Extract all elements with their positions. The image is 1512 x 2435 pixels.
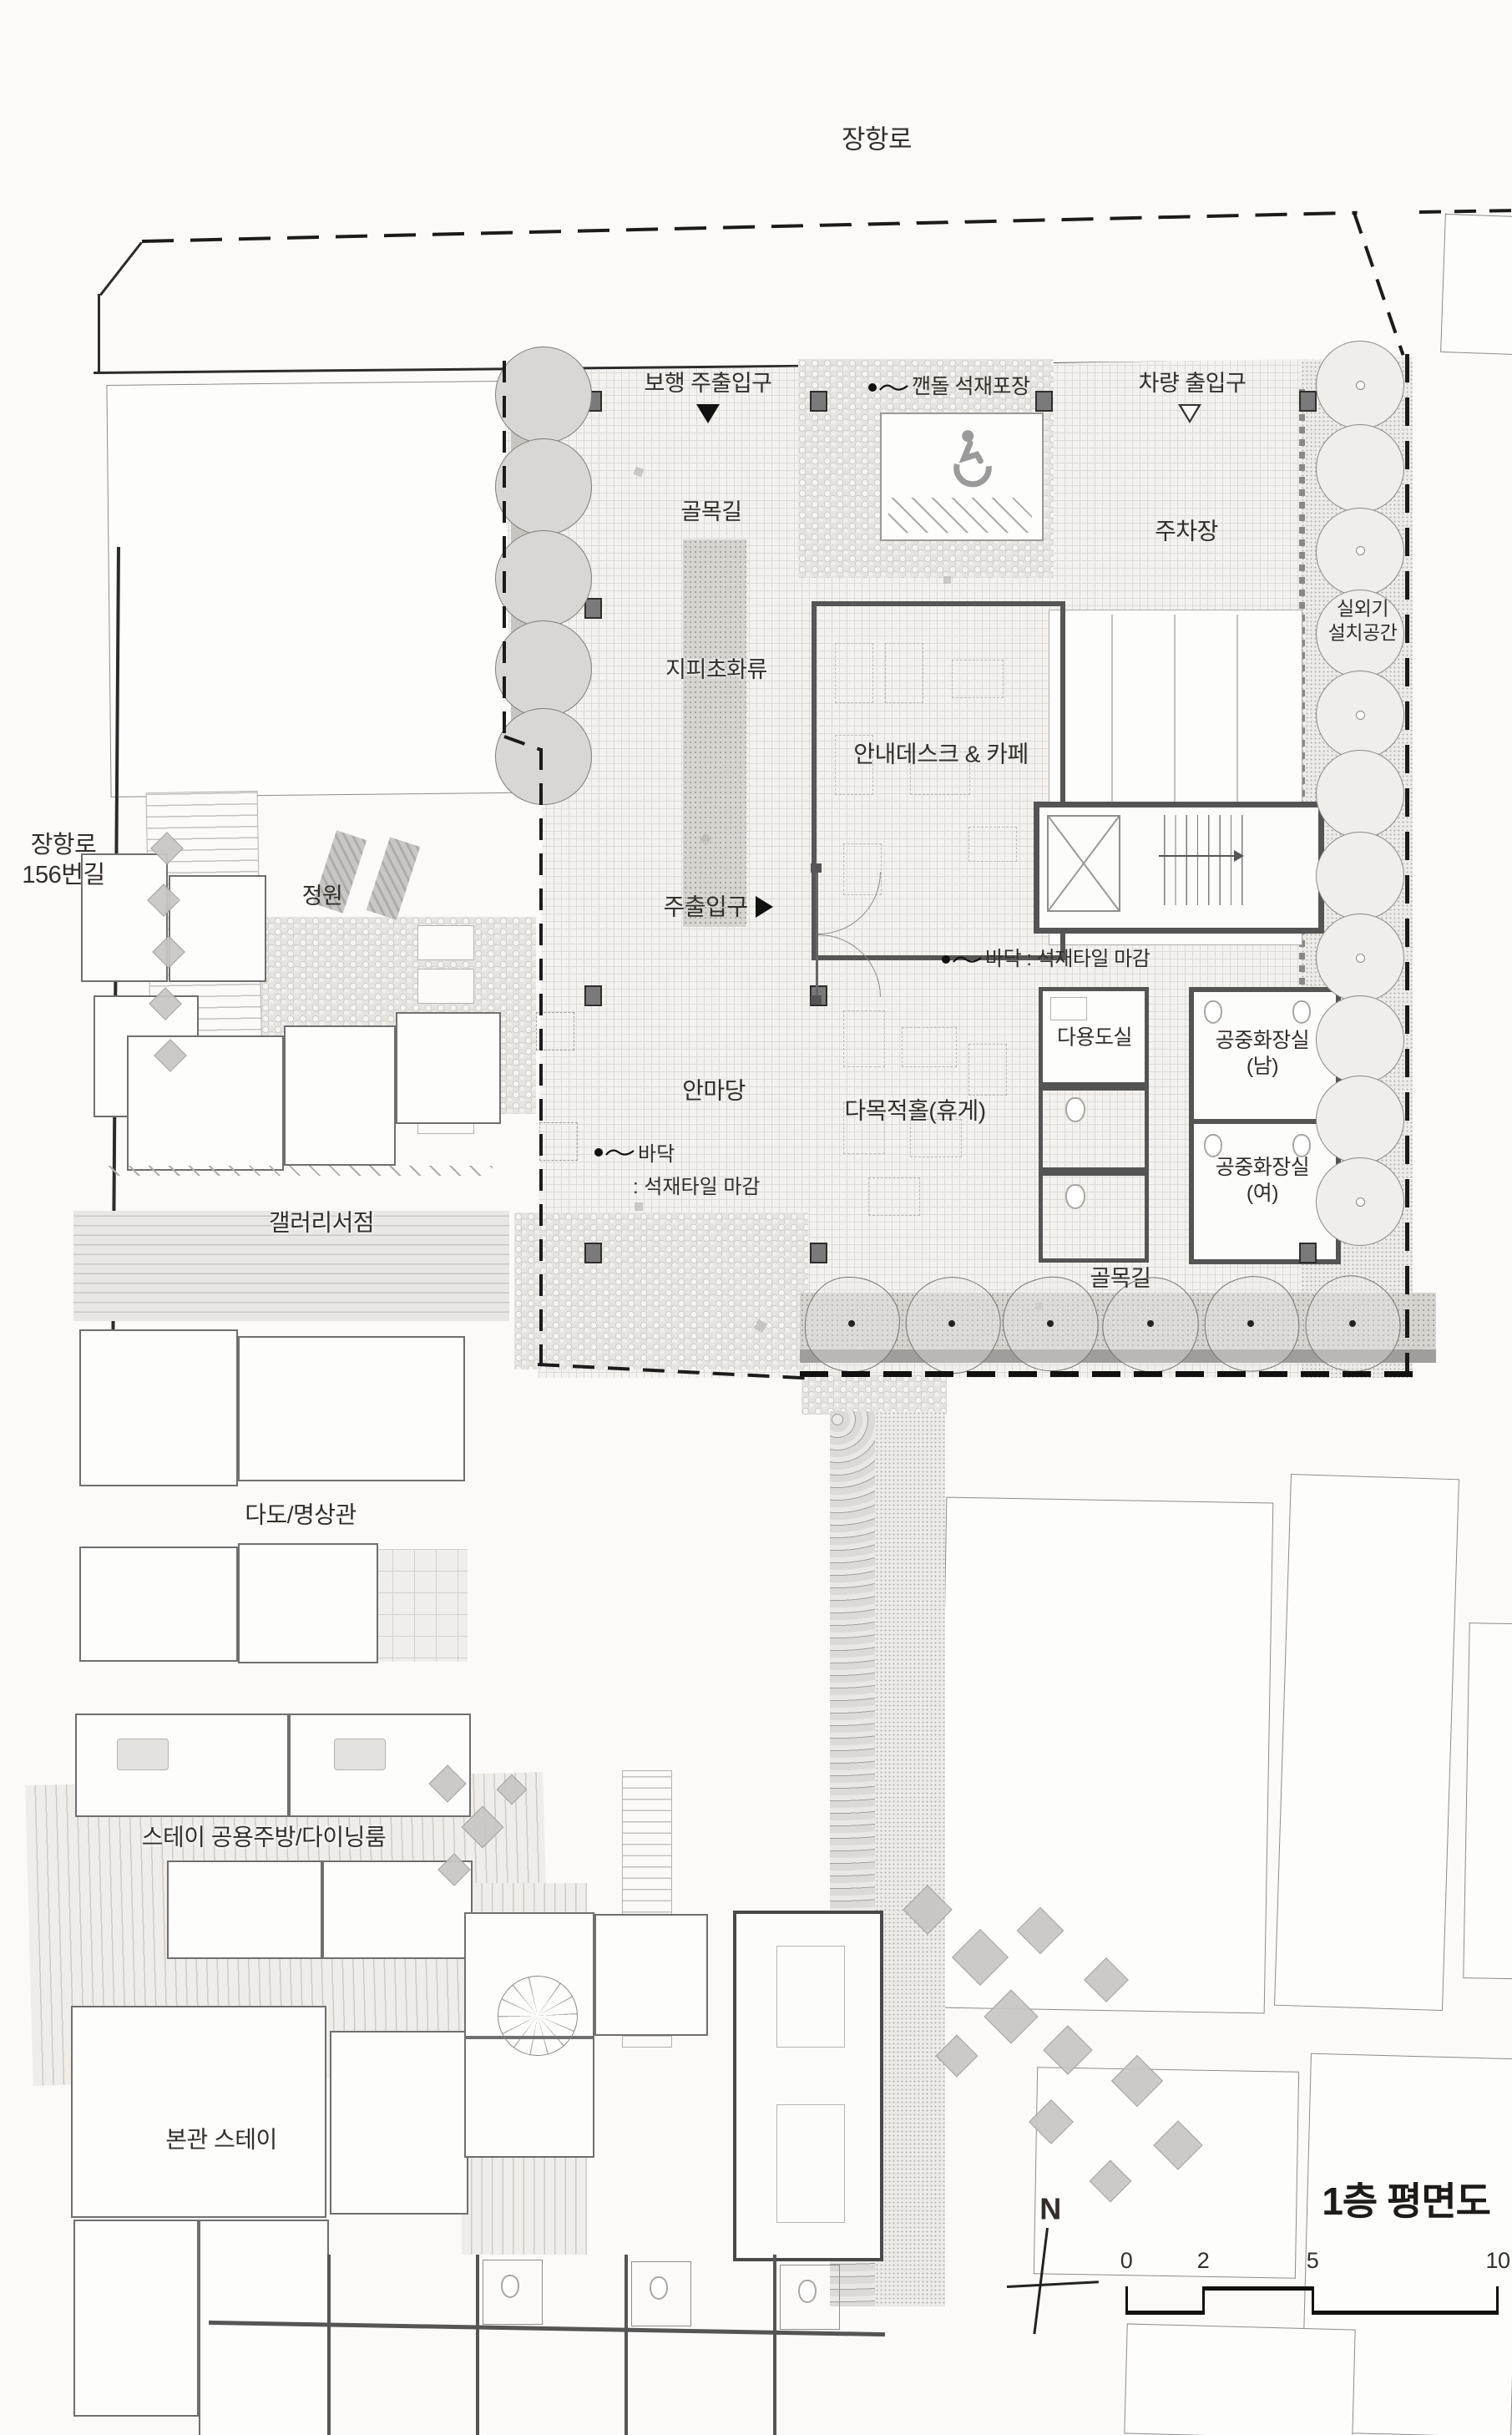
parcel [1463,1622,1512,1980]
tea-meditation-label: 다도/명상관 [245,1501,357,1530]
pedestrian-entrance-marker [696,404,720,423]
groundcover-label: 지피초화류 [665,656,767,685]
furniture [868,1177,920,1216]
tree [1316,750,1404,838]
leader-dot-icon [594,1148,603,1157]
room-outline [169,875,266,982]
toilet [501,2275,519,2298]
toilet [1065,1184,1085,1209]
road-label-left: 장항로 156번길 [22,830,104,891]
north-crossbar [1007,2281,1099,2287]
gravel-path [875,1411,945,2306]
toilet [650,2276,668,2300]
tree [495,530,592,627]
parking-label: 주차장 [1155,517,1218,546]
cobble-path [802,1374,947,1415]
room-outline [284,1025,396,1166]
column [810,1243,827,1263]
leader-dot-icon [942,955,950,964]
floor-plan: 장항로 장항로 156번길 보행 주출입구 깬돌 석재포장 차량 출입구 골목길… [0,0,1512,2435]
speck [635,1202,643,1211]
main-entrance-label: 주출입구 [663,893,747,922]
stone-paving-leader: 깬돌 석재포장 [868,374,1029,400]
road-label-top: 장항로 [842,124,912,157]
scale-tick-10: 10 [1485,2247,1509,2276]
floor-finish-label: 바닥 : 석재타일 마감 [985,947,1150,972]
scale-tick-5: 5 [1307,2247,1319,2276]
site-boundary [1419,209,1512,214]
access-aisle-hatch [888,498,1032,533]
tree-dot [1247,1320,1254,1327]
leader-squiggle-icon [953,953,983,966]
leader-squiggle-icon [879,381,909,394]
wc-women-line1: 공중화장실 [1216,1156,1310,1179]
counter [776,1946,845,2048]
counter [776,2104,845,2223]
tree [1316,424,1404,513]
column [1299,391,1317,412]
hall-label: 다목적홀(휴게) [844,1096,985,1126]
toilet [798,2280,817,2303]
column [1035,391,1053,412]
tree [495,438,592,535]
courtyard-label: 안마당 [682,1076,746,1106]
road-edge [99,241,142,296]
wc-room [1039,1082,1149,1176]
wc-women-label: 공중화장실 (여) [1216,1155,1310,1207]
room-outline [238,1543,378,1663]
tree-dot [1349,1320,1356,1327]
tree-dot [948,1320,955,1327]
stone-paving-label: 깬돌 석재포장 [912,374,1029,400]
furniture [843,1010,885,1067]
room-outline [73,2220,199,2417]
garden-label: 정원 [302,883,343,911]
tree-center [1356,954,1365,963]
room-outline [167,1860,322,1959]
room-outline [396,1012,501,1124]
pedestrian-entrance-label: 보행 주출입구 [644,370,771,398]
wc-room [1039,1167,1149,1263]
main-stay-label: 본관 스테이 [165,2125,277,2154]
toilet [1204,1000,1222,1024]
road-label-left-line1: 장항로 [31,832,97,858]
elevator [1047,815,1120,912]
room-outline [330,2031,468,2215]
wall-segment [625,2255,628,2435]
room-outline [75,1714,289,1817]
furniture [902,1027,957,1067]
shelf [1050,997,1087,1020]
floor-finish-bottom-line1: 바닥 [638,1137,675,1167]
room-outline [199,2220,329,2435]
main-entrance-marker [756,896,773,918]
outdoor-unit-line2: 설치공간 [1328,621,1398,643]
porch-hatch [100,1166,493,1176]
south-cobble [514,1212,808,1369]
room-outline [71,2006,326,2218]
wall-segment [476,2255,479,2435]
stair-arrow [1159,855,1236,857]
tree-center [1356,381,1365,390]
site-boundary [1353,212,1404,355]
scale-bar-segment [1202,2286,1313,2291]
column [584,1243,602,1263]
tree [1316,995,1404,1084]
column [810,391,827,412]
furniture [968,1044,1007,1096]
room-outline [464,2038,594,2158]
toilet [1065,1097,1085,1122]
vehicle-entrance-marker-inner [1181,406,1198,420]
room-outline [79,1547,238,1662]
site-boundary [1405,354,1409,1374]
vehicle-entrance-label: 차량 출입구 [1139,370,1247,398]
stair-arrowhead [1234,850,1244,862]
wc-men-label: 공중화장실 (남) [1216,1028,1310,1081]
scale-bar-segment [1125,2311,1204,2315]
wc-men-line1: 공중화장실 [1216,1029,1310,1052]
tree [1316,832,1404,920]
floor-finish-leader-top: 바닥 : 석재타일 마감 [942,947,1150,972]
room-outline [127,1035,284,1171]
site-boundary [503,361,506,738]
planter [539,1122,578,1161]
scale-bar-segment [1312,2311,1499,2315]
tree [1316,1076,1404,1164]
stepping-stone [417,925,474,960]
scale-tick-0: 0 [1120,2247,1133,2276]
spiral-stair [498,1976,578,2056]
tree-center [1356,711,1365,720]
leader-squiggle-icon [605,1146,635,1159]
parcel [1274,1474,1459,2011]
road-label-left-line2: 156번길 [22,862,104,888]
table [334,1739,386,1770]
table [117,1739,169,1770]
utility-room-label: 다용도실 [1057,1025,1132,1050]
north-label: N [1039,2190,1061,2228]
scale-tick-2: 2 [1197,2247,1210,2276]
column [584,985,602,1006]
speck [943,576,951,584]
wall-segment [327,2255,331,2435]
outdoor-unit-label: 실외기 설치공간 [1328,596,1398,645]
floor-finish-leader-bottom: 바닥 : 석재타일 마감 [594,1137,760,1199]
toilet [1292,1000,1311,1024]
site-boundary [800,1371,1414,1377]
outdoor-unit-line1: 실외기 [1337,597,1388,619]
room-outline [79,1329,238,1486]
tree-dot [848,1320,855,1327]
tree-dot [1047,1320,1054,1327]
wc-men-line2: (남) [1247,1055,1278,1078]
floor-finish-bottom-line2: : 석재타일 마감 [633,1170,760,1199]
tree [495,708,592,805]
groundcover-bed [683,539,746,927]
parcel [1124,2323,1355,2435]
site-boundary [142,211,1358,243]
tree [495,347,592,443]
site-boundary [539,748,543,1364]
tree [495,620,592,717]
column [584,598,602,619]
wall-segment [773,2255,776,2435]
parcel [1440,214,1512,356]
stay-kitchen-label: 스테이 공용주방/다이닝룸 [142,1823,386,1852]
room-outline [594,1914,708,2036]
tree-dot [1147,1320,1154,1327]
info-cafe-label: 안내데스크 & 카페 [853,740,1029,769]
alley-bottom-label: 골목길 [1090,1265,1150,1293]
road-edge [98,294,100,373]
plan-title: 1층 평면도 [1322,2171,1490,2226]
tree-center [1356,546,1365,555]
stepping-stone [417,969,474,1004]
wc-women-line2: (여) [1247,1182,1278,1205]
parcel [1034,2067,1299,2278]
column [1299,1243,1317,1263]
room-outline [238,1336,465,1481]
bench [367,837,421,919]
leader-dot-icon [868,383,877,392]
tree-center [1356,1197,1365,1207]
gallery-label: 갤러리서점 [269,1208,374,1238]
alley-top-label: 골목길 [680,499,741,527]
